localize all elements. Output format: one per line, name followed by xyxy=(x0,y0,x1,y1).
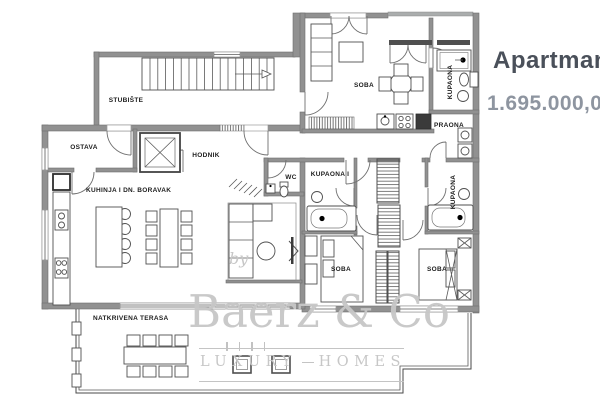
room-label-kuhinja: KUHINJA I DN. BORAVAK xyxy=(86,187,171,194)
room-label-soba-studio: SOBA xyxy=(354,82,374,89)
laundry-room xyxy=(458,128,472,158)
bathroom-top xyxy=(437,50,478,102)
room-label-kupaona-mid: KUPAONA xyxy=(450,175,457,209)
floor-plan-screenshot: STUBIŠTE OSTAVA HODNIK KUHINJA I DN. BOR… xyxy=(0,0,600,400)
room-label-kupaona-1: KUPAONA I xyxy=(311,171,349,178)
listing-title: Apartman xyxy=(493,47,600,75)
room-label-soba-left: SOBA xyxy=(331,266,351,273)
bathroom-1 xyxy=(307,192,356,232)
studio-room xyxy=(311,24,431,129)
room-label-kupaona-top: KUPAONA xyxy=(447,65,454,99)
coffee-table xyxy=(257,242,275,260)
room-label-ostava: OSTAVA xyxy=(70,144,97,151)
room-label-praona: PRAONA xyxy=(434,122,464,129)
kitchen-island xyxy=(96,207,131,267)
elevator xyxy=(140,133,180,172)
walls xyxy=(42,12,479,313)
terrace-columns xyxy=(233,356,290,373)
listing-price: 1.695.000,00 xyxy=(487,92,600,116)
room-label-terasa: NATKRIVENA TERASA xyxy=(93,315,169,322)
room-label-hodnik: HODNIK xyxy=(192,152,219,159)
room-label-soba-right: SOBA xyxy=(427,266,447,273)
blinds-window-strip xyxy=(309,117,354,129)
dining-table xyxy=(146,209,192,267)
kitchen-counter xyxy=(53,174,70,305)
stairs xyxy=(142,58,274,90)
closets xyxy=(376,159,400,303)
room-label-wc: WC xyxy=(285,174,296,181)
room-label-stubiste: STUBIŠTE xyxy=(109,95,144,104)
